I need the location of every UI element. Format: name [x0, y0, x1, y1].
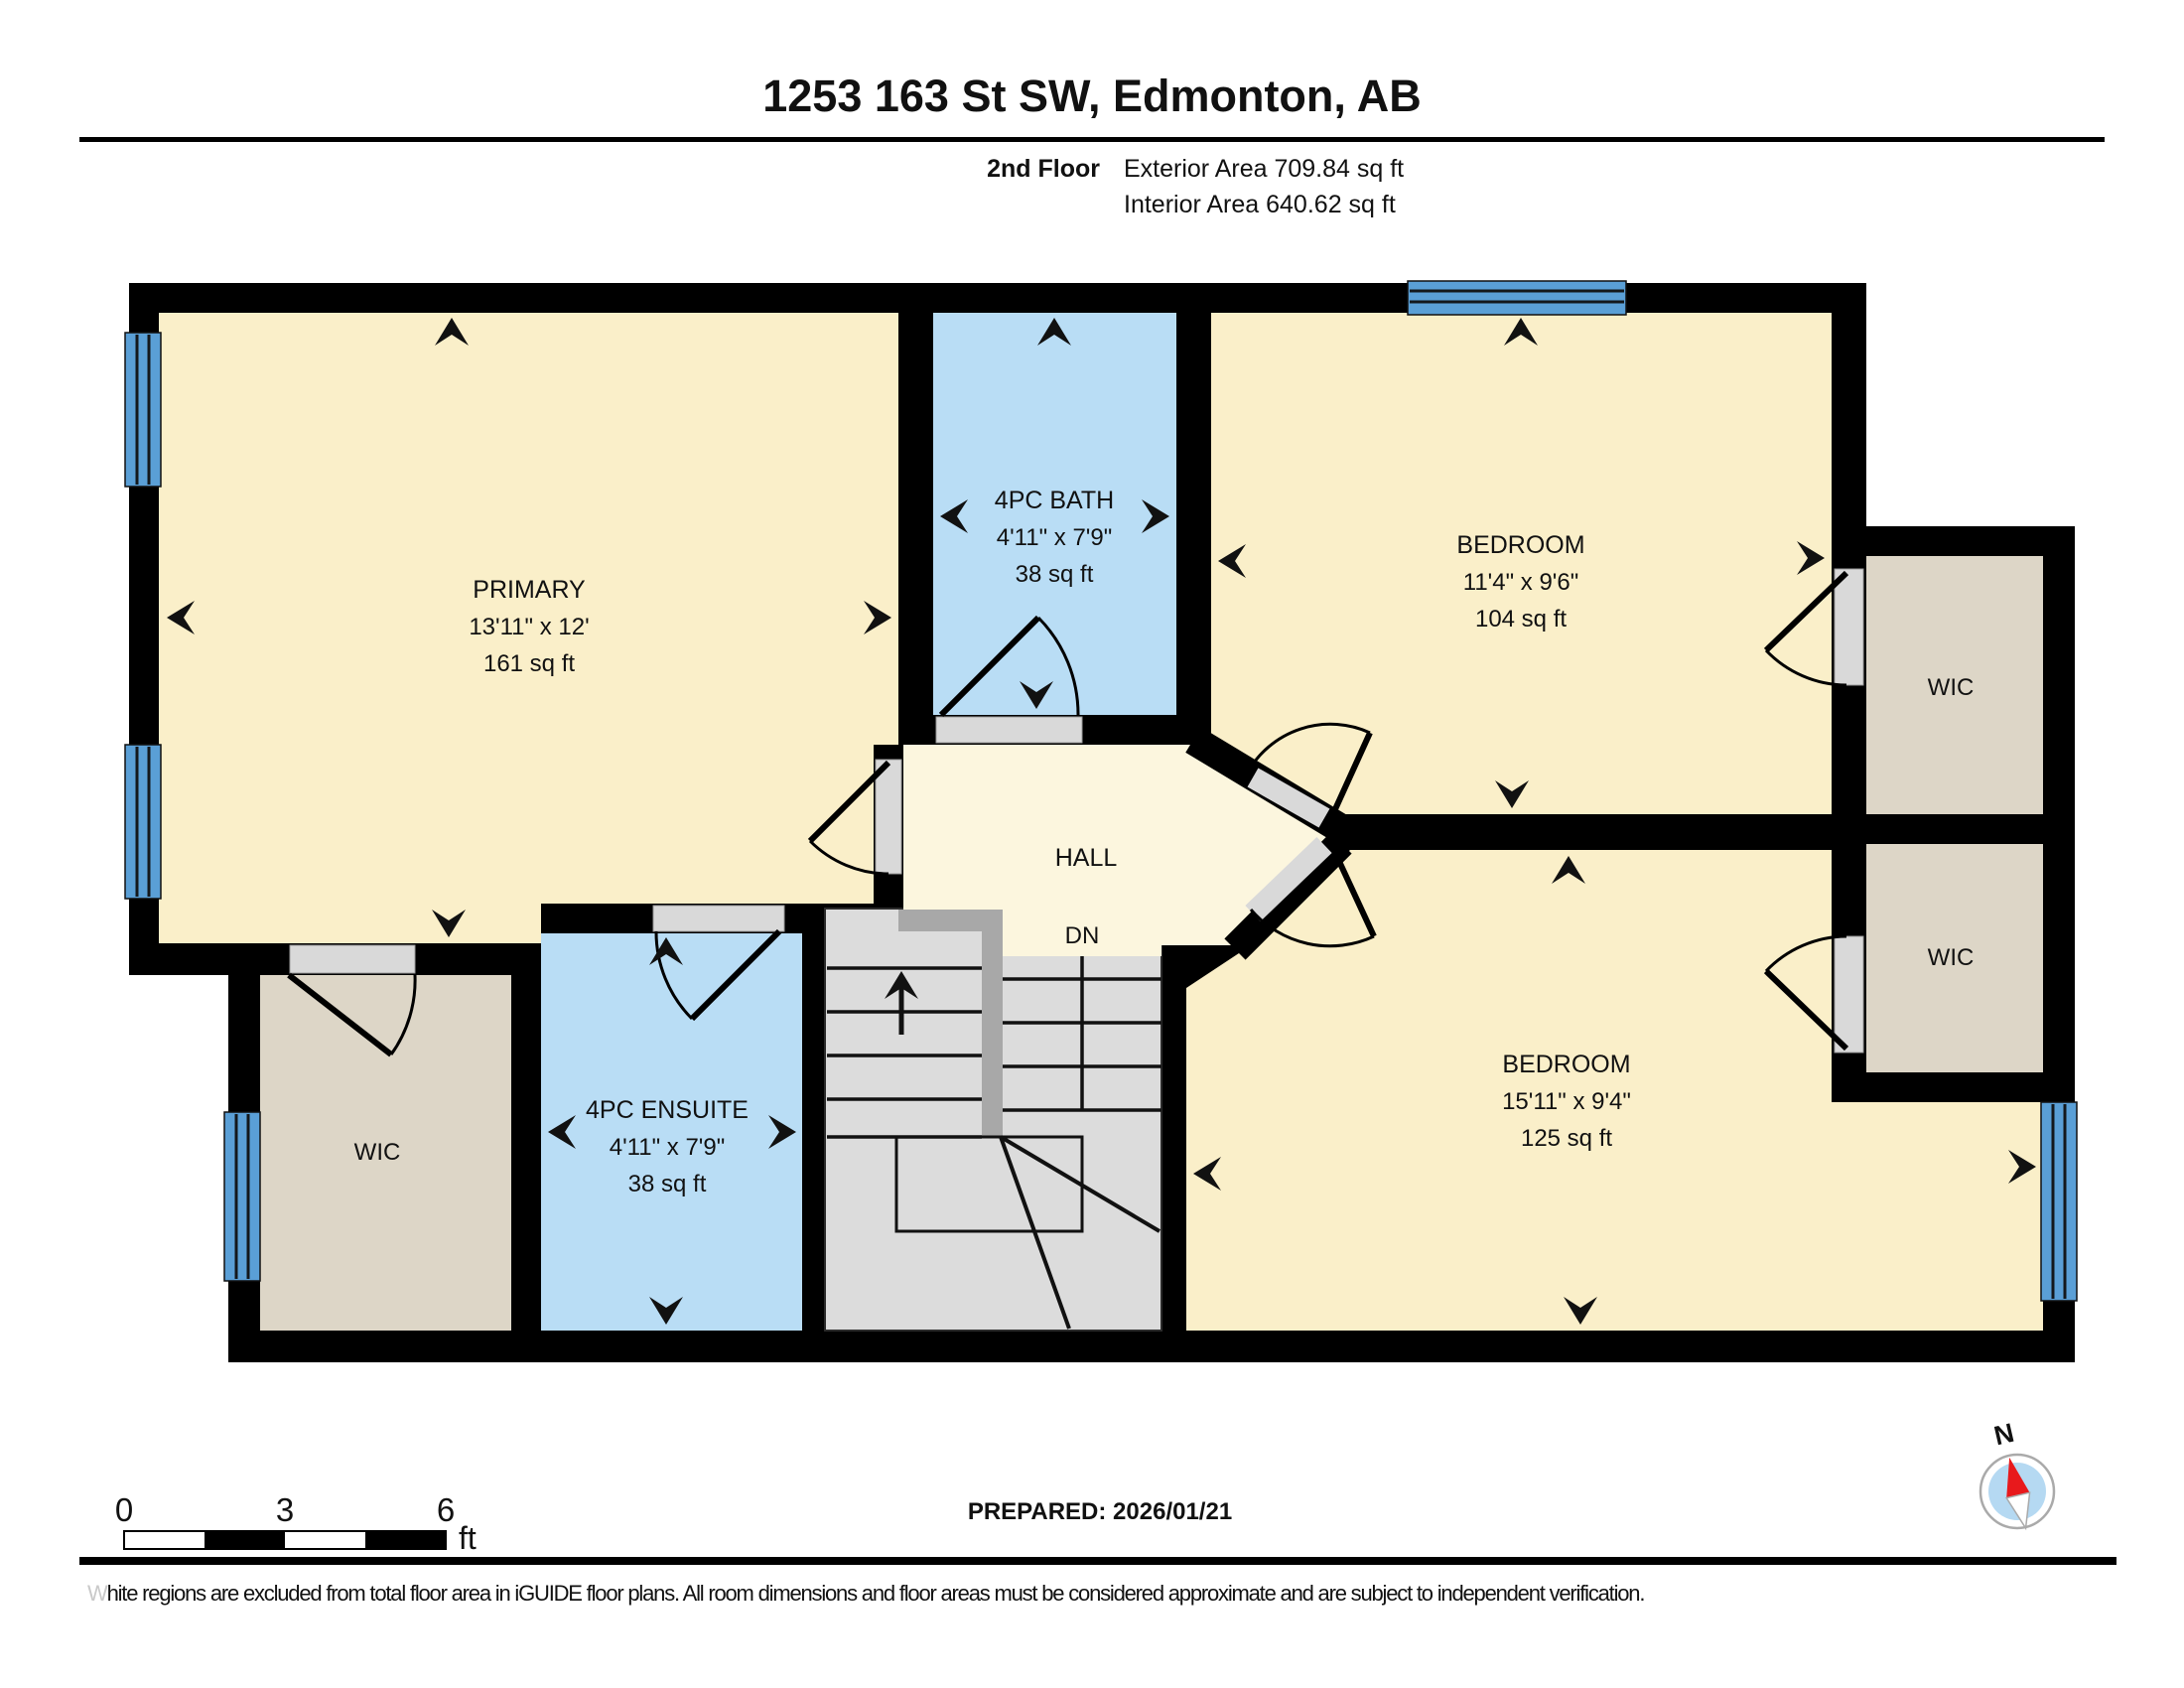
- label-ensuite-name: 4PC ENSUITE: [586, 1096, 749, 1124]
- scale-bar-seg-4: [365, 1531, 446, 1549]
- footer: 0 3 6 ft PREPARED: 2026/01/21 N White re…: [79, 1417, 2116, 1606]
- label-bath-area: 38 sq ft: [1016, 561, 1094, 588]
- label-wic-left: WIC: [354, 1139, 401, 1166]
- door-opening-wic-bottom-right: [1835, 936, 1863, 1053]
- scale-unit: ft: [459, 1520, 477, 1556]
- exterior-area: Exterior Area 709.84 sq ft: [1124, 155, 1404, 183]
- floorplan-svg: 1253 163 St SW, Edmonton, AB 2nd Floor E…: [0, 0, 2184, 1688]
- door-opening-bath: [936, 717, 1082, 743]
- scale-bar-seg-2: [205, 1531, 285, 1549]
- label-bedroom-bottom-dims: 15'11" x 9'4": [1502, 1088, 1631, 1115]
- label-bedroom-top-dims: 11'4" x 9'6": [1463, 569, 1579, 596]
- header-divider: [79, 137, 2105, 142]
- label-hall: HALL: [1055, 844, 1118, 872]
- floorplan: PRIMARY 13'11" x 12' 161 sq ft 4PC BATH …: [125, 281, 2077, 1362]
- label-wic-bottom-right: WIC: [1928, 944, 1975, 971]
- label-dn: DN: [1065, 922, 1100, 949]
- floor-label: 2nd Floor: [987, 155, 1100, 183]
- window-right: [2041, 1102, 2077, 1301]
- disclaimer: White regions are excluded from total fl…: [87, 1581, 1644, 1606]
- door-opening-primary-hall: [876, 760, 901, 874]
- window-left-lower: [125, 745, 161, 899]
- label-primary-area: 161 sq ft: [483, 650, 575, 677]
- room-bedroom-top: [1211, 313, 1832, 814]
- window-wic-left: [224, 1112, 260, 1281]
- door-opening-ensuite: [653, 906, 784, 931]
- scale-tick-0: 0: [115, 1491, 133, 1528]
- label-bath-name: 4PC BATH: [995, 487, 1114, 514]
- disclaimer-lead: W: [87, 1581, 108, 1606]
- label-bedroom-bottom-area: 125 sq ft: [1521, 1125, 1612, 1152]
- scale-tick-3: 3: [276, 1491, 294, 1528]
- label-ensuite-area: 38 sq ft: [628, 1171, 707, 1197]
- label-primary-dims: 13'11" x 12': [469, 614, 589, 640]
- door-opening-wic-left: [290, 945, 415, 973]
- interior-area: Interior Area 640.62 sq ft: [1124, 191, 1396, 218]
- disclaimer-rest: hite regions are excluded from total flo…: [107, 1581, 1645, 1606]
- label-bedroom-top-area: 104 sq ft: [1475, 606, 1567, 633]
- page-title: 1253 163 St SW, Edmonton, AB: [762, 70, 1422, 121]
- label-wic-top-right: WIC: [1928, 674, 1975, 701]
- footer-divider: [79, 1557, 2116, 1565]
- compass-n-label: N: [1991, 1418, 2017, 1452]
- scale-tick-6: 6: [437, 1491, 455, 1528]
- door-opening-wic-top-right: [1835, 569, 1863, 685]
- label-ensuite-dims: 4'11" x 7'9": [610, 1134, 726, 1161]
- window-left-upper: [125, 333, 161, 487]
- label-bedroom-bottom-name: BEDROOM: [1502, 1051, 1630, 1078]
- label-bath-dims: 4'11" x 7'9": [997, 524, 1113, 551]
- label-primary-name: PRIMARY: [473, 576, 586, 604]
- floorplan-page: 1253 163 St SW, Edmonton, AB 2nd Floor E…: [0, 0, 2184, 1688]
- label-bedroom-top-name: BEDROOM: [1456, 531, 1584, 559]
- window-top: [1408, 281, 1626, 315]
- header: 1253 163 St SW, Edmonton, AB 2nd Floor E…: [79, 70, 2105, 218]
- stair-guard-wall: [898, 910, 1003, 931]
- prepared-date: PREPARED: 2026/01/21: [968, 1498, 1232, 1525]
- scale-bar: 0 3 6 ft: [115, 1491, 477, 1556]
- compass-icon: N: [1980, 1417, 2054, 1531]
- stair-divider: [982, 931, 1003, 1137]
